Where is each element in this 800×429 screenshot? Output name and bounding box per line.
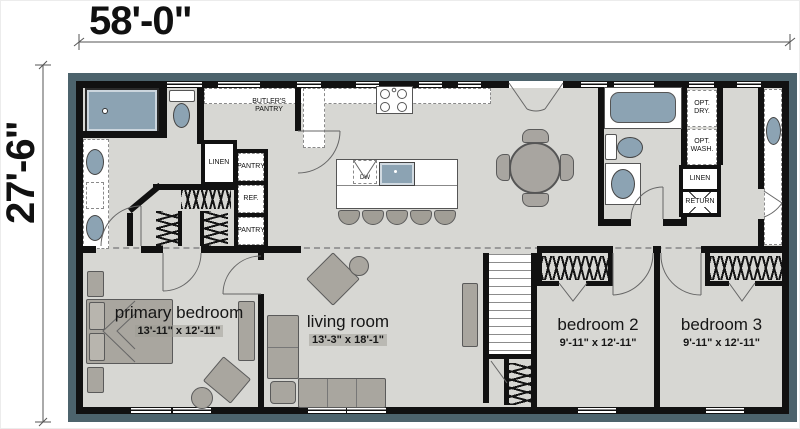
- dining-chair: [522, 193, 549, 207]
- utility-counter: [764, 89, 782, 245]
- window: [218, 81, 260, 88]
- bedroom-3-size: 9'-11" x 12'-11": [683, 337, 760, 349]
- pantry-label: PANTRY: [238, 153, 264, 181]
- window: [308, 407, 346, 414]
- dining-chair: [522, 129, 549, 143]
- closet-wall: [178, 211, 182, 246]
- closet-wall: [705, 281, 729, 286]
- closet-wall: [537, 281, 559, 286]
- toilet-tank: [169, 90, 195, 102]
- linen-label: LINEN: [683, 169, 717, 189]
- vanity-sink: [611, 169, 635, 199]
- ottoman: [270, 381, 296, 404]
- window: [458, 81, 481, 88]
- closet-hanging-rod: [156, 211, 178, 246]
- bedroom-3-name: bedroom 3: [664, 316, 779, 333]
- ceiling-break-dashed-line: [83, 247, 782, 249]
- toilet-bowl: [173, 103, 190, 128]
- primary-bedroom-name: primary bedroom: [109, 304, 249, 321]
- wall-segment: [258, 294, 264, 413]
- primary-bedroom-label: primary bedroom 13'-11" x 12'-11": [109, 304, 249, 339]
- side-table-round: [191, 387, 213, 409]
- closet-wall: [200, 211, 204, 246]
- range-stove: [376, 86, 413, 114]
- staircase: [489, 254, 531, 354]
- bedroom-2-label: bedroom 2 9'-11" x 12'-11": [543, 316, 653, 351]
- stair-landing-wall: [489, 354, 531, 359]
- dishwasher-label: DW: [353, 173, 377, 183]
- window: [347, 407, 386, 414]
- patio-door-opening: [509, 81, 563, 88]
- closet-hanging-rod: [181, 190, 231, 209]
- nightstand: [87, 271, 104, 297]
- coat-closet-rod: [509, 363, 531, 405]
- wall-segment: [717, 88, 723, 165]
- wall-segment: [83, 131, 167, 138]
- floor-plan-image: 58'-0" 27'-6" LINEN PANTRY RE: [0, 0, 800, 429]
- side-table-round: [349, 256, 369, 276]
- vanity-cabinet: [86, 182, 104, 209]
- toilet-bowl: [617, 137, 643, 158]
- wall-segment: [258, 246, 264, 260]
- shower: [85, 88, 159, 133]
- window: [737, 81, 761, 88]
- wall-segment: [598, 219, 631, 226]
- wall-segment: [654, 253, 660, 413]
- vanity-sink: [86, 215, 104, 241]
- dining-table: [509, 142, 561, 194]
- closet-wall: [755, 281, 782, 286]
- primary-bedroom-size: 13'-11" x 12'-11": [135, 325, 224, 337]
- window: [131, 407, 171, 414]
- dining-chair: [560, 154, 574, 181]
- living-room-name: living room: [278, 313, 418, 330]
- return-label-text: RETURN: [684, 198, 715, 206]
- living-room-label: living room 13'-3" x 18'-1": [278, 313, 418, 348]
- window: [706, 407, 744, 414]
- pillow: [89, 302, 105, 330]
- wall-segment: [663, 219, 687, 226]
- pillow: [89, 333, 105, 361]
- utility-sink: [766, 117, 781, 145]
- bathtub: [610, 92, 676, 123]
- window: [419, 81, 442, 88]
- butlers-pantry-label: BUTLER'S PANTRY: [241, 93, 297, 119]
- closet-wall: [127, 213, 133, 246]
- closet-hanging-rod: [542, 256, 608, 280]
- window: [297, 81, 321, 88]
- optional-dryer-label: OPT. DRY.: [689, 93, 715, 123]
- wall-segment: [653, 246, 661, 253]
- refrigerator-label: REF.: [238, 185, 264, 213]
- vanity-sink: [86, 149, 104, 175]
- closet-hanging-rod: [204, 211, 228, 246]
- window: [167, 81, 202, 88]
- wall-segment: [141, 246, 163, 253]
- island-sink-faucet: [394, 170, 397, 173]
- wall-segment: [537, 246, 613, 253]
- nightstand: [87, 367, 104, 393]
- toilet-tank: [605, 134, 617, 160]
- media-console: [462, 283, 478, 347]
- wall-segment: [201, 246, 301, 253]
- butlers-pantry-counter: [303, 88, 325, 148]
- closet-hanging-rod: [710, 256, 782, 280]
- pantry-label: PANTRY: [238, 217, 264, 245]
- return-label: RETURN: [683, 192, 717, 213]
- dining-chair: [496, 154, 510, 181]
- wall-segment: [159, 88, 167, 131]
- bedroom-2-size: 9'-11" x 12'-11": [560, 337, 637, 349]
- wall-segment: [701, 246, 789, 253]
- overall-height-dimension: 27'-6": [0, 93, 45, 253]
- linen-label: LINEN: [205, 144, 233, 182]
- wall-segment: [197, 88, 204, 144]
- wall-segment: [76, 246, 96, 253]
- shower-drain: [102, 108, 108, 114]
- optional-washer-label: OPT. WASH.: [689, 131, 715, 161]
- living-room-size: 13'-3" x 18'-1": [309, 334, 387, 346]
- bedroom-3-label: bedroom 3 9'-11" x 12'-11": [664, 316, 779, 351]
- sofa: [298, 378, 386, 408]
- bedroom-2-name: bedroom 2: [543, 316, 653, 333]
- closet-wall: [586, 281, 613, 286]
- window: [578, 407, 616, 414]
- island-sink: [379, 162, 415, 186]
- overall-width-dimension: 58'-0": [89, 0, 192, 44]
- window: [689, 81, 714, 88]
